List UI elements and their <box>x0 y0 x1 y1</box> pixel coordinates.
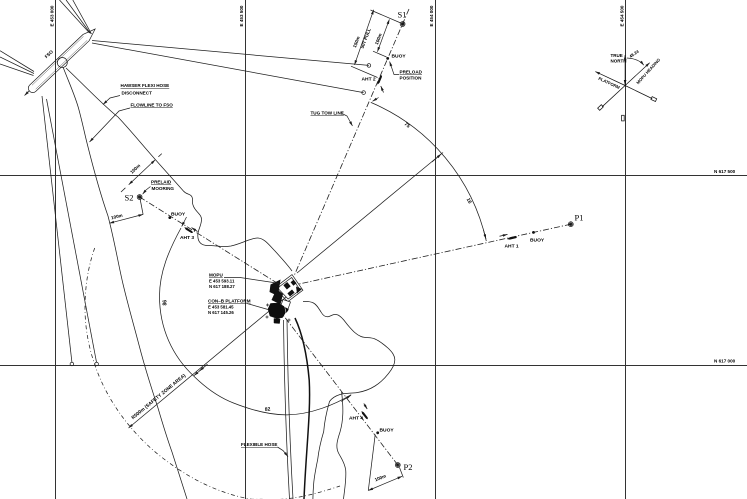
svg-text:N 617 500: N 617 500 <box>714 169 736 174</box>
svg-text:N 617 188.27: N 617 188.27 <box>209 284 235 289</box>
svg-text:E 453 500: E 453 500 <box>239 5 244 26</box>
svg-text:E 454 000: E 454 000 <box>429 5 434 26</box>
svg-text:POSITION: POSITION <box>400 76 423 81</box>
svg-text:BUOY: BUOY <box>530 237 545 243</box>
svg-text:MOORING: MOORING <box>152 186 175 191</box>
svg-text:E 453 593.11: E 453 593.11 <box>209 278 235 283</box>
svg-text:DISCONNECT: DISCONNECT <box>122 91 153 96</box>
svg-text:MOPU: MOPU <box>209 273 223 278</box>
svg-text:AHT 4: AHT 4 <box>349 416 363 422</box>
svg-text:E 454 500: E 454 500 <box>620 5 625 26</box>
svg-text:N 617 145.26: N 617 145.26 <box>208 310 234 315</box>
svg-text:PRELAID: PRELAID <box>151 180 172 185</box>
svg-text:NORTH: NORTH <box>611 59 627 64</box>
svg-text:BUOY: BUOY <box>380 427 395 433</box>
svg-text:TUG TOW LINE: TUG TOW LINE <box>311 111 344 116</box>
svg-text:AHT 3: AHT 3 <box>180 235 194 241</box>
svg-text:N 617 000: N 617 000 <box>714 358 736 363</box>
svg-text:S2: S2 <box>125 193 134 203</box>
svg-text:E 453 000: E 453 000 <box>50 5 55 26</box>
svg-text:FLEXIBLE HOSE: FLEXIBLE HOSE <box>241 442 278 447</box>
svg-text:AHT 1: AHT 1 <box>505 243 519 249</box>
svg-text:S1: S1 <box>398 10 407 20</box>
svg-text:AHT 2: AHT 2 <box>362 77 376 83</box>
svg-text:E 453 581.45: E 453 581.45 <box>208 304 234 309</box>
svg-text:82: 82 <box>265 406 271 413</box>
svg-text:BUOY: BUOY <box>392 54 407 60</box>
svg-text:HAWSER FLEXI HOSE: HAWSER FLEXI HOSE <box>121 83 170 88</box>
svg-text:P2: P2 <box>404 462 413 472</box>
svg-text:TRUE: TRUE <box>611 53 623 58</box>
svg-text:PRELOAD: PRELOAD <box>400 70 423 75</box>
svg-text:P1: P1 <box>575 213 584 223</box>
svg-text:CON–B PLATFORM: CON–B PLATFORM <box>208 299 251 304</box>
svg-text:86: 86 <box>163 300 169 306</box>
svg-text:FLOWLINE TO FSO: FLOWLINE TO FSO <box>131 103 174 108</box>
svg-text:BUOY: BUOY <box>171 212 186 218</box>
